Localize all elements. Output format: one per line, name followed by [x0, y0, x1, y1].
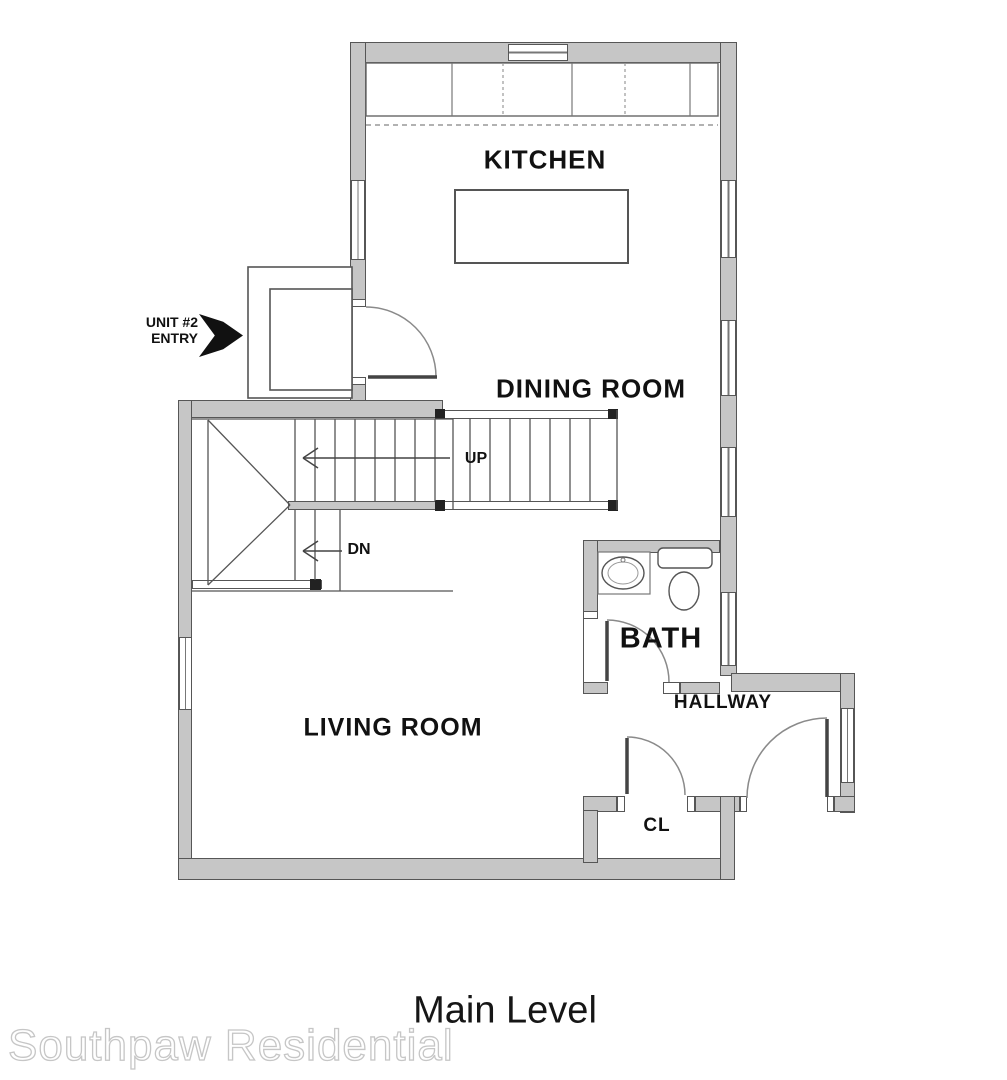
label-stairs-dn: DN [347, 541, 370, 559]
label-unit2-line2: ENTRY [151, 330, 198, 346]
door-hallway-entry [747, 718, 827, 798]
kitchen-counter [366, 63, 718, 125]
door-closet [627, 737, 685, 795]
label-unit2-entry: UNIT #2 ENTRY [128, 314, 198, 346]
entry-vestibule [248, 267, 352, 398]
watermark: Southpaw Residential [8, 1021, 454, 1071]
label-unit2-line1: UNIT #2 [146, 314, 198, 330]
stairs [192, 410, 617, 591]
label-dining: DINING ROOM [496, 374, 686, 405]
floor-plan: KITCHEN DINING ROOM LIVING ROOM BATH HAL… [0, 0, 1007, 1080]
stair-arrow-up [303, 448, 450, 468]
label-living: LIVING ROOM [303, 714, 482, 743]
label-hallway: HALLWAY [674, 692, 772, 714]
label-bath: BATH [620, 623, 702, 656]
door-unit2-entry [366, 307, 437, 377]
kitchen-island [455, 190, 628, 263]
stair-arrow-dn [303, 541, 342, 561]
bath-sink [598, 552, 650, 594]
bath-toilet [658, 548, 712, 610]
label-closet: CL [643, 815, 670, 837]
label-stairs-up: UP [465, 450, 487, 468]
label-kitchen: KITCHEN [484, 145, 607, 176]
